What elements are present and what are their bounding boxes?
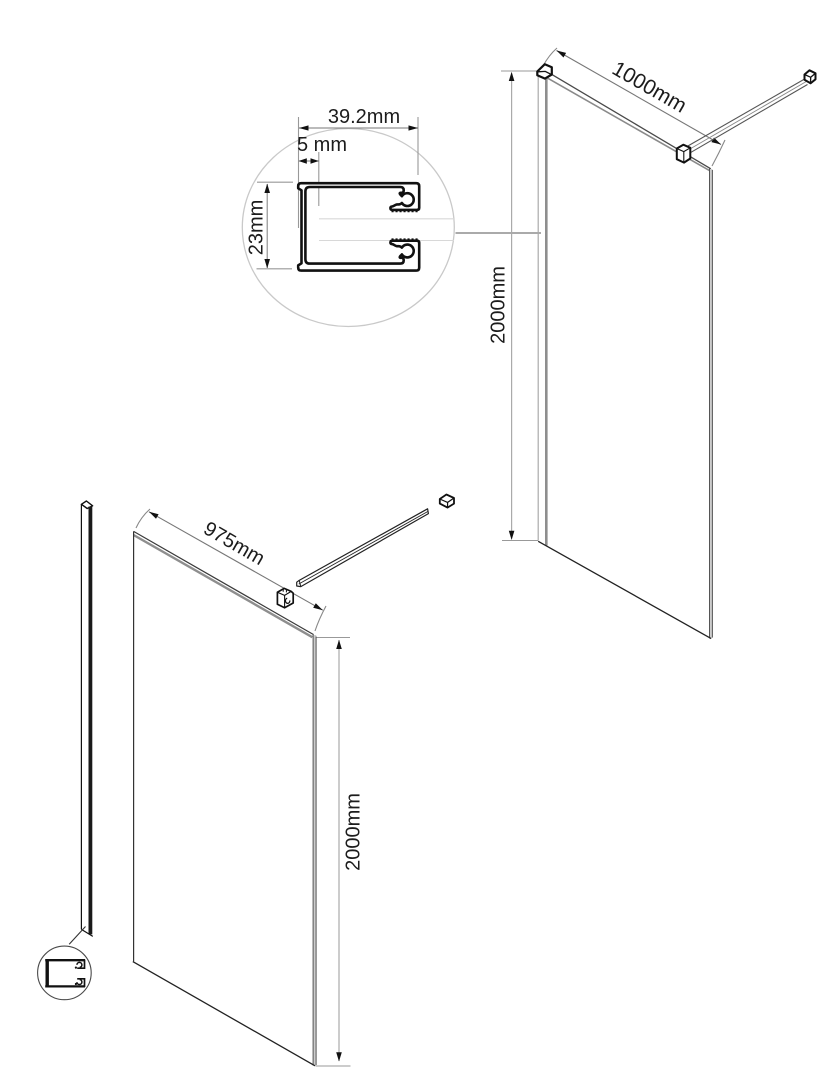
svg-text:975mm: 975mm bbox=[200, 518, 269, 570]
svg-text:39.2mm: 39.2mm bbox=[328, 106, 400, 128]
svg-text:2000mm: 2000mm bbox=[343, 793, 365, 871]
svg-text:5 mm: 5 mm bbox=[297, 134, 347, 156]
svg-text:23mm: 23mm bbox=[246, 200, 268, 256]
svg-text:2000mm: 2000mm bbox=[488, 266, 510, 344]
